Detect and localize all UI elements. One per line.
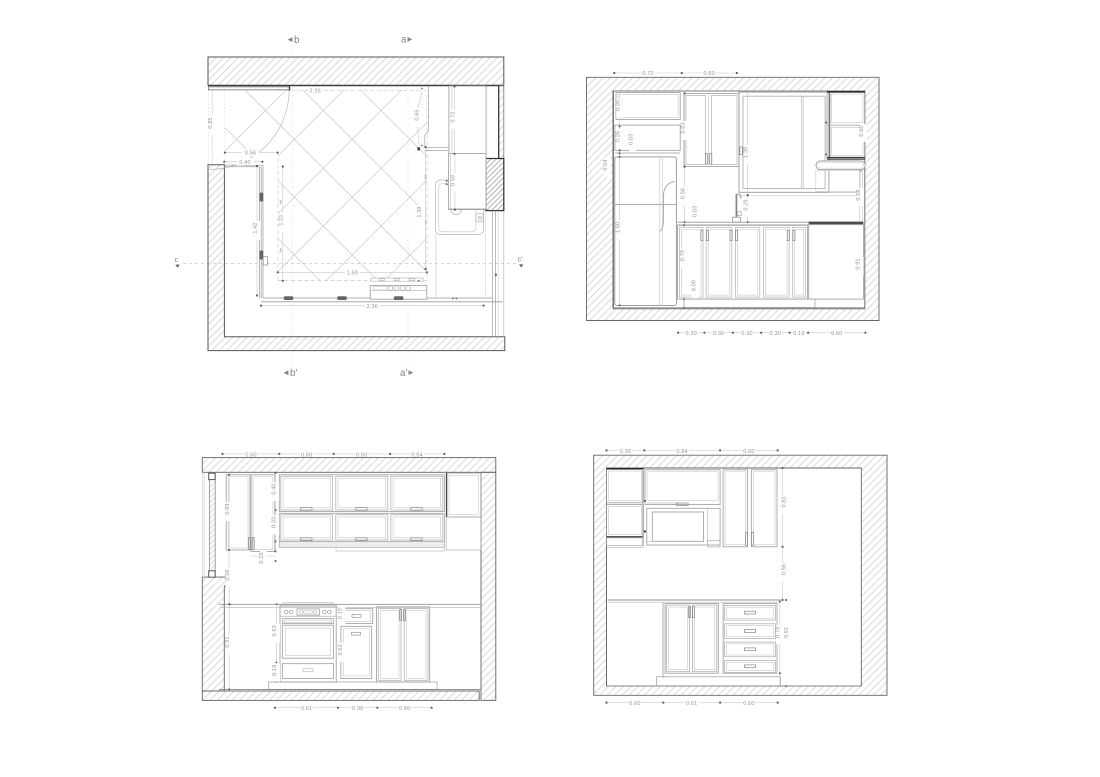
svg-text:1.21: 1.21	[279, 214, 285, 225]
svg-text:0.19: 0.19	[793, 331, 804, 337]
svg-text:0.79: 0.79	[776, 627, 782, 638]
svg-text:0.60: 0.60	[629, 701, 640, 707]
svg-text:2.26: 2.26	[310, 88, 321, 94]
svg-text:0.91: 0.91	[225, 636, 231, 647]
svg-text:0.62: 0.62	[338, 644, 344, 655]
svg-text:0.04: 0.04	[603, 159, 609, 170]
svg-text:0.60: 0.60	[743, 701, 754, 707]
svg-text:0.58: 0.58	[451, 175, 457, 186]
svg-text:0.30: 0.30	[713, 331, 724, 337]
svg-text:0.79: 0.79	[680, 250, 686, 261]
svg-text:0.72: 0.72	[450, 111, 456, 122]
svg-text:0.61: 0.61	[686, 701, 697, 707]
svg-text:0.61: 0.61	[301, 706, 312, 712]
svg-text:0.60: 0.60	[245, 452, 256, 458]
svg-text:0.38: 0.38	[615, 100, 621, 111]
svg-text:1.42: 1.42	[253, 222, 259, 233]
svg-text:0.56: 0.56	[856, 189, 862, 200]
svg-text:0.03: 0.03	[693, 206, 699, 217]
svg-text:0.60: 0.60	[743, 449, 754, 455]
svg-text:0.26: 0.26	[615, 131, 621, 142]
svg-text:0.65: 0.65	[415, 109, 421, 120]
svg-text:0.60: 0.60	[399, 706, 410, 712]
svg-text:1.59: 1.59	[347, 271, 358, 277]
svg-text:0.30: 0.30	[686, 331, 697, 337]
svg-text:b: b	[294, 35, 300, 46]
svg-text:0.84: 0.84	[677, 449, 688, 455]
svg-text:0.09: 0.09	[691, 280, 697, 291]
svg-text:0.56: 0.56	[245, 151, 256, 157]
svg-text:0.83: 0.83	[680, 122, 686, 133]
svg-text:0.72: 0.72	[642, 71, 653, 77]
svg-text:0.83: 0.83	[225, 503, 231, 514]
svg-text:0.30: 0.30	[770, 331, 781, 337]
svg-text:0.40: 0.40	[239, 160, 250, 166]
svg-text:0.56: 0.56	[781, 564, 787, 575]
svg-text:0.91: 0.91	[784, 627, 790, 638]
svg-text:0.56: 0.56	[680, 188, 686, 199]
svg-text:0.60: 0.60	[704, 71, 715, 77]
svg-text:0.19: 0.19	[338, 608, 344, 619]
svg-text:b': b'	[290, 368, 297, 379]
svg-text:0.60: 0.60	[831, 331, 842, 337]
svg-text:0.56: 0.56	[225, 569, 231, 580]
svg-text:0.03: 0.03	[628, 134, 634, 145]
svg-text:c: c	[175, 255, 179, 264]
svg-text:0.63: 0.63	[272, 625, 278, 636]
svg-text:0.83: 0.83	[781, 496, 787, 507]
svg-text:a': a'	[400, 368, 407, 379]
svg-text:0.40: 0.40	[271, 483, 277, 494]
svg-text:0.29: 0.29	[744, 199, 750, 210]
svg-text:0.85: 0.85	[208, 117, 214, 128]
svg-text:0.30: 0.30	[741, 331, 752, 337]
svg-text:0.54: 0.54	[412, 452, 423, 458]
svg-text:2.36: 2.36	[367, 304, 378, 310]
svg-text:0.60: 0.60	[301, 452, 312, 458]
svg-text:0.38: 0.38	[352, 706, 363, 712]
svg-text:0.33: 0.33	[271, 517, 277, 528]
svg-text:0.60: 0.60	[356, 452, 367, 458]
svg-text:a: a	[401, 35, 407, 46]
svg-text:1.39: 1.39	[417, 206, 423, 217]
svg-text:1.39: 1.39	[744, 147, 750, 158]
svg-text:0.91: 0.91	[856, 258, 862, 269]
svg-text:0.38: 0.38	[620, 449, 631, 455]
svg-text:1.60: 1.60	[615, 222, 621, 233]
svg-text:c': c'	[518, 255, 524, 264]
svg-text:0.60: 0.60	[859, 125, 865, 136]
svg-text:0.19: 0.19	[272, 665, 278, 676]
svg-text:0.10: 0.10	[259, 552, 265, 563]
